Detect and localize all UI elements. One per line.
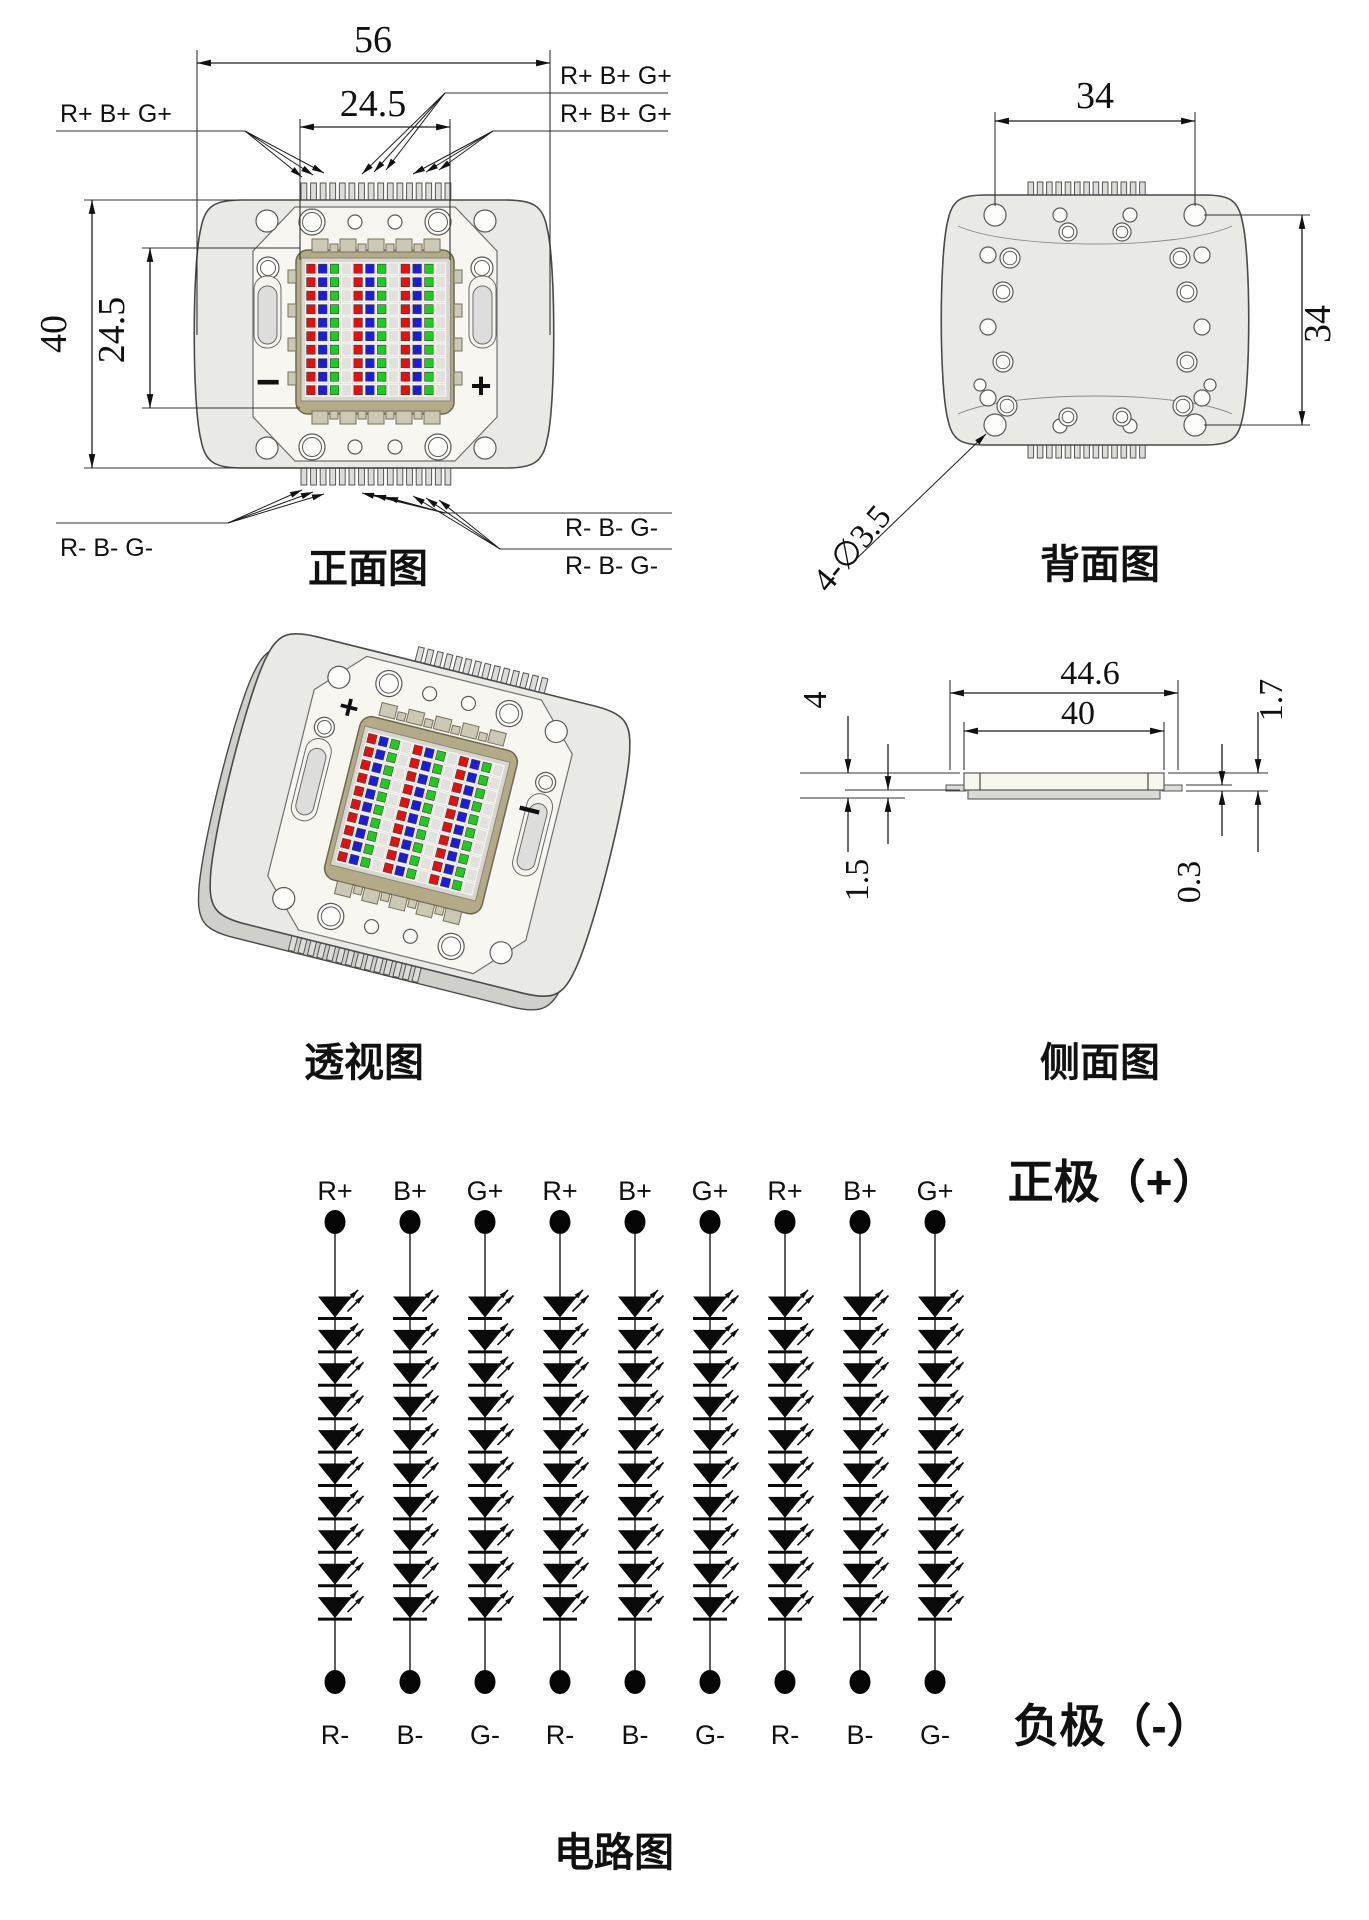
ear-hole [474,437,496,459]
led-symbol [618,1290,664,1319]
lead-label-top-left: R+ B+ G+ [56,100,324,177]
hole-diameter-note: 4-∅3.5 [806,498,899,599]
led-symbol [543,1390,589,1419]
terminal-label-positive: G+ [467,1176,504,1206]
led-chip-B [355,828,366,839]
led-chip-G [377,264,386,273]
led-cell [341,357,351,369]
led-symbol [318,1290,364,1319]
dim-hole-span-v: 34 [1297,305,1339,343]
led-symbol [618,1557,664,1586]
led-symbol [393,1524,439,1553]
back-hole [1194,247,1210,263]
led-chip-B [366,318,375,327]
pin [301,467,307,485]
led-cell [429,817,442,831]
led-chip-R [341,838,352,849]
led-cell [439,778,452,792]
led-chip-G [383,765,394,776]
led-chip-G [406,868,417,879]
led-cell [341,303,351,315]
dim-side-pin-thickness: 0.3 [1171,861,1208,904]
led-symbol [618,1524,664,1553]
led-symbol [618,1323,664,1352]
pin [397,467,403,485]
bond-pad [396,712,406,722]
terminal-dot [550,1210,571,1234]
led-cell [465,868,478,882]
led-chip-R [307,278,316,287]
terminal-dot [850,1210,871,1234]
led-symbol [693,1390,739,1419]
led-symbol [543,1457,589,1486]
led-symbol [693,1323,739,1352]
svg-text:R+ B+ G+: R+ B+ G+ [560,100,672,128]
led-cell [370,858,383,872]
circuit-caption: 电路图 [554,1831,674,1875]
back-hole [1184,414,1206,436]
led-symbol [918,1424,964,1453]
terminal-dot [700,1670,721,1694]
pin [1093,182,1099,196]
led-chip-B [366,359,375,368]
led-chip-G [412,842,423,853]
led-chip-G [330,359,339,368]
led-chip-B [349,854,360,865]
led-symbol [318,1357,364,1386]
led-chip-R [401,305,410,314]
led-chip-R [307,372,316,381]
led-cell [341,317,351,329]
led-symbol [918,1557,964,1586]
led-chip-R [383,863,394,874]
led-symbol [918,1524,964,1553]
led-symbol [843,1524,889,1553]
led-chip-G [452,880,463,891]
led-symbol [543,1290,589,1319]
led-chip-B [424,748,435,759]
pin [301,183,307,201]
led-cell [475,829,488,843]
led-chip-G [481,762,492,773]
led-symbol [318,1390,364,1419]
bond-pad [407,899,417,909]
bond-pad [386,411,394,419]
led-cell [482,803,495,817]
led-chip-R [429,874,440,885]
led-chip-B [352,841,363,852]
led-symbol [543,1591,589,1620]
led-cell [469,855,482,869]
led-chip-G [468,814,479,825]
terminal-dot [625,1670,646,1694]
led-chip-R [367,733,378,744]
terminal-dot [400,1670,421,1694]
led-chip-G [429,777,440,788]
led-cell [388,303,398,315]
bond-pad [340,411,356,424]
led-symbol [768,1524,814,1553]
led-chip-B [366,305,375,314]
led-chip-R [393,823,404,834]
led-chip-B [447,851,458,862]
led-chip-G [330,278,339,287]
pin [1102,444,1108,458]
led-cell [380,819,393,833]
terminal-label-negative: R- [771,1720,800,1750]
bond-pad [358,411,366,419]
led-symbol [618,1457,664,1486]
terminal-dot [400,1210,421,1234]
pin [1028,182,1034,196]
bond-pad [330,411,338,419]
led-chip-G [425,278,434,287]
pin [1140,444,1146,458]
led-chip-G [471,801,482,812]
led-chip-R [455,769,466,780]
led-chip-R [412,745,423,756]
led-symbol [768,1290,814,1319]
led-chip-G [425,332,434,341]
led-chip-G [425,291,434,300]
led-chip-B [318,372,327,381]
pin [1130,182,1136,196]
pin [445,467,451,485]
dim-emitter-width: 24.5 [340,83,407,125]
led-symbol [468,1357,514,1386]
led-chip-B [450,838,461,849]
pin [359,183,365,201]
led-chip-G [377,332,386,341]
led-chip-R [403,784,414,795]
led-symbol [768,1557,814,1586]
led-cell [388,357,398,369]
led-chip-B [366,332,375,341]
led-chip-B [318,359,327,368]
side-tab [288,372,296,385]
led-cell [423,844,436,858]
led-cell [472,842,485,856]
pin [330,467,336,485]
led-chip-G [478,775,489,786]
terminal-label-positive: B+ [618,1176,652,1206]
led-symbol [543,1490,589,1519]
led-symbol [693,1524,739,1553]
led-chip-R [337,851,348,862]
led-symbol [618,1357,664,1386]
led-chip-R [360,760,371,771]
bond-pad [451,725,461,735]
led-symbol [843,1357,889,1386]
led-chip-R [354,372,363,381]
dim-hole-span-h: 34 [1076,75,1114,117]
led-chip-R [409,758,420,769]
terminal-label-positive: G+ [692,1176,729,1206]
led-chip-G [419,816,430,827]
terminal-dot [925,1210,946,1234]
front-led-array [301,258,451,401]
pin [311,183,317,201]
led-symbol [843,1390,889,1419]
led-chip-R [445,809,456,820]
led-chip-G [432,764,443,775]
led-chip-R [344,825,355,836]
led-chip-B [413,359,422,368]
pin [320,467,326,485]
ear-hole [256,210,278,232]
bond-pad [414,244,422,252]
led-chip-R [396,810,407,821]
led-chip-B [460,798,471,809]
led-chip-R [442,822,453,833]
pin [426,467,432,485]
led-symbol [393,1557,439,1586]
led-chip-B [421,761,432,772]
led-cell [436,371,446,383]
back-hole [984,414,1006,436]
led-cell [341,290,351,302]
led-chip-B [417,774,428,785]
led-chip-G [380,778,391,789]
led-symbol [768,1357,814,1386]
dim-side-body-height: 1.7 [1253,679,1290,722]
led-chip-G [360,857,371,868]
terminal-label-positive: R+ [767,1176,802,1206]
terminal-label-negative: G- [470,1720,500,1750]
led-symbol [693,1490,739,1519]
led-symbol [393,1490,439,1519]
led-chip-R [452,782,463,793]
led-cell [446,752,459,766]
led-symbol [468,1557,514,1586]
pin [1140,182,1146,196]
dim-overall-width: 56 [354,19,392,61]
pin [407,183,413,201]
dim-side-overall: 44.6 [1060,655,1120,692]
terminal-label-negative: B- [622,1720,649,1750]
bond-pad [478,732,488,742]
led-chip-B [413,305,422,314]
pin [359,467,365,485]
pin [378,467,384,485]
led-chip-G [425,345,434,354]
pin [1121,182,1127,196]
led-cell [462,881,475,895]
led-chip-B [318,345,327,354]
dim-emitter-height: 24.5 [91,297,133,364]
bond-pad [386,244,394,252]
led-chip-B [362,802,373,813]
led-chip-R [401,291,410,300]
led-cell [433,804,446,818]
terminal-label-positive: G+ [917,1176,954,1206]
back-hole [974,379,986,391]
led-symbol [468,1424,514,1453]
led-chip-G [458,854,469,865]
led-symbol [468,1323,514,1352]
terminal-label-negative: G- [920,1720,950,1750]
perspective-view: + − 透视图 [184,608,648,1085]
led-cell [416,870,429,884]
terminal-dot [700,1210,721,1234]
led-symbol [393,1357,439,1386]
side-body [964,773,1164,790]
led-cell [341,371,351,383]
led-symbol [318,1524,364,1553]
led-chip-R [350,799,361,810]
led-chip-B [408,813,419,824]
led-chip-R [401,386,410,395]
led-chip-B [413,318,422,327]
pin [1056,444,1062,458]
led-chip-R [354,786,365,797]
led-chip-G [435,751,446,762]
led-cell [388,317,398,329]
led-cell [377,832,390,846]
led-chip-B [457,811,468,822]
led-chip-B [318,386,327,395]
led-symbol [318,1490,364,1519]
led-cell [436,303,446,315]
terminal-label-positive: R+ [542,1176,577,1206]
pin [1084,444,1090,458]
led-symbol [393,1290,439,1319]
led-symbol [693,1457,739,1486]
led-chip-G [377,345,386,354]
led-cell [388,371,398,383]
led-chip-R [401,278,410,287]
led-symbol [543,1323,589,1352]
led-symbol [543,1357,589,1386]
terminal-label-positive: R+ [317,1176,352,1206]
lead-label-top-right-2: R+ B+ G+ [413,100,672,174]
led-cell [478,816,491,830]
led-symbol [468,1390,514,1419]
pin [407,467,413,485]
led-chip-B [413,345,422,354]
bond-pad [424,718,434,728]
pin [368,467,374,485]
back-hole [1194,319,1210,335]
led-chip-R [354,291,363,300]
terminal-dot [775,1670,796,1694]
side-pin-right [1162,785,1182,791]
led-cell [397,754,410,768]
pin [1075,444,1081,458]
led-symbol [468,1290,514,1319]
terminal-label-negative: B- [847,1720,874,1750]
led-cell [388,276,398,288]
led-symbol [318,1591,364,1620]
dim-overall-height: 40 [33,315,75,353]
led-chip-B [411,800,422,811]
led-chip-G [377,278,386,287]
back-hole [1204,379,1216,391]
led-chip-G [425,359,434,368]
bond-pad [424,411,440,424]
led-chip-G [377,305,386,314]
led-chip-B [444,864,455,875]
led-symbol [843,1323,889,1352]
pin [416,183,422,201]
led-chip-G [370,818,381,829]
led-cell [400,740,413,754]
led-chip-G [330,305,339,314]
bond-pad [396,411,412,424]
led-symbol [918,1390,964,1419]
led-chip-B [366,264,375,273]
led-symbol [918,1357,964,1386]
led-chip-R [354,359,363,368]
led-chip-B [404,826,415,837]
bond-pad [312,411,328,424]
led-symbol [768,1390,814,1419]
lead-label-bottom-left: R- B- G- [56,490,324,562]
led-chip-B [470,759,481,770]
back-hole [1113,223,1131,241]
terminal-label-negative: G- [695,1720,725,1750]
led-chip-R [386,850,397,861]
led-chip-G [377,386,386,395]
led-cell [388,344,398,356]
led-symbol [393,1390,439,1419]
pin [435,183,441,201]
pin [378,183,384,201]
led-chip-G [455,867,466,878]
back-hole [1059,223,1077,241]
led-cell [374,845,387,859]
led-symbol [843,1424,889,1453]
led-chip-G [425,386,434,395]
led-cell [442,765,455,779]
led-chip-R [390,837,401,848]
led-chip-R [357,773,368,784]
pin [397,183,403,201]
led-symbol [318,1457,364,1486]
led-chip-B [466,772,477,783]
bond-pad [368,411,384,424]
lead-label-bottom-right-1: R- B- G- [362,493,672,542]
led-chip-G [416,829,427,840]
led-chip-B [378,736,389,747]
side-tab [454,372,462,385]
bond-pad [380,892,390,902]
led-symbol [468,1490,514,1519]
pin [1065,444,1071,458]
terminal-label-negative: R- [321,1720,350,1750]
led-cell [341,263,351,275]
front-minus-mark: − [256,358,281,405]
led-chip-B [366,386,375,395]
side-tab [288,270,296,283]
pin [339,183,345,201]
side-tab [454,338,462,351]
perspective-view-caption: 透视图 [304,1041,424,1085]
led-symbol [843,1490,889,1519]
led-chip-G [373,805,384,816]
led-cell [436,263,446,275]
led-chip-B [414,787,425,798]
led-chip-G [330,291,339,300]
led-symbol [693,1357,739,1386]
back-hole [1053,208,1067,222]
led-chip-G [377,359,386,368]
pin [426,183,432,201]
led-chip-R [307,264,316,273]
led-chip-G [409,855,420,866]
led-symbol [393,1424,439,1453]
led-chip-R [354,386,363,395]
